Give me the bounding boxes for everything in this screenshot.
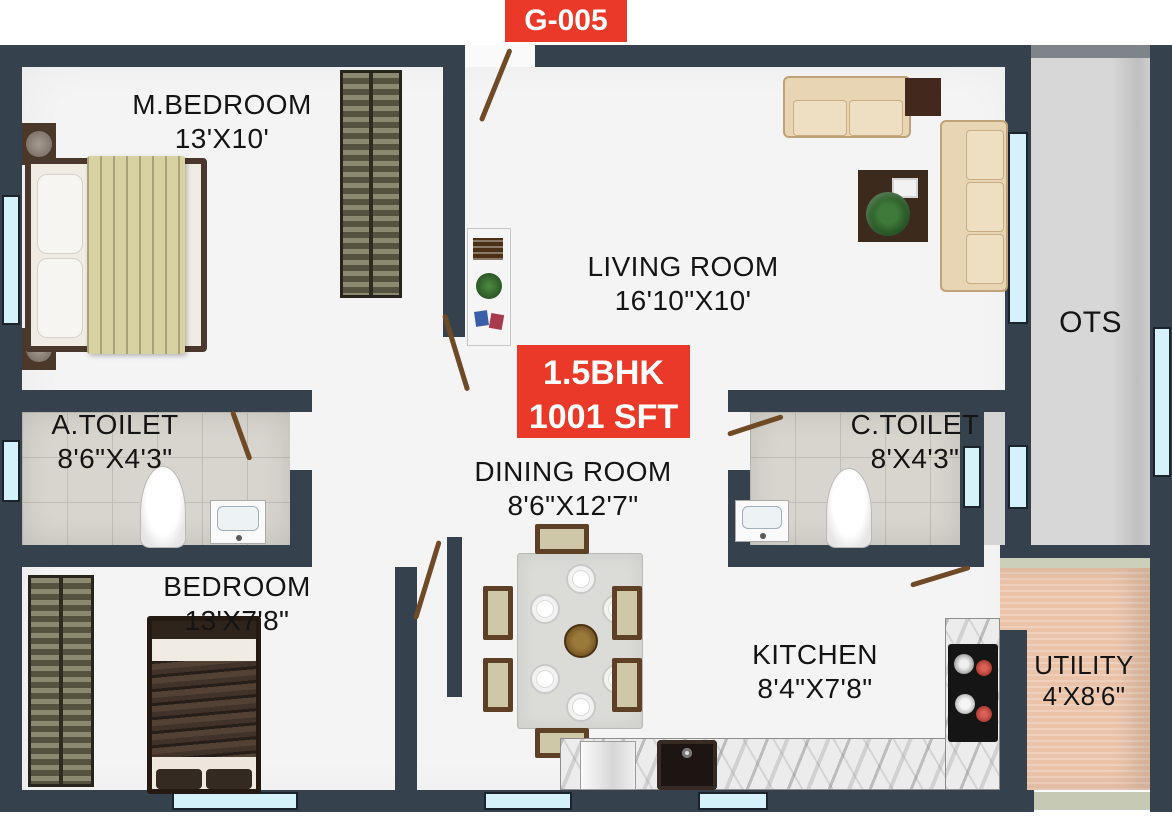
window-dining-bottom <box>484 792 572 810</box>
wall-utility-top <box>1000 545 1172 558</box>
room-dims: 8'4"X7'8" <box>710 672 920 706</box>
basin-tap <box>236 535 242 541</box>
bed-pillow <box>37 258 83 338</box>
room-dims: 13'X7'8" <box>117 604 357 638</box>
room-name: LIVING ROOM <box>553 250 813 284</box>
room-label-kitchen: KITCHEN 8'4"X7'8" <box>710 638 920 705</box>
dinner-plate <box>530 594 560 624</box>
photo-frame <box>489 313 504 330</box>
bedroom-wardrobe <box>28 575 94 787</box>
utility-threshold-top <box>1000 558 1150 568</box>
photo-frame <box>474 310 489 327</box>
room-label-c-toilet: C.TOILET 8'X4'3" <box>820 408 1010 475</box>
bed-pillow <box>206 769 252 789</box>
bed-blanket <box>87 156 185 354</box>
unit-number: G-005 <box>524 4 607 37</box>
wall-bedroom-right <box>395 567 417 812</box>
window-kitchen-bottom <box>698 792 768 810</box>
wall-left <box>0 45 22 812</box>
dinner-plate <box>566 692 596 722</box>
dining-chair <box>612 658 642 712</box>
sofa-cushion <box>849 100 903 136</box>
wardrobe-rail <box>59 578 63 784</box>
room-dims: 13'X10' <box>92 122 352 156</box>
wall-mbedroom-right <box>443 67 465 337</box>
stove-burner <box>976 706 992 722</box>
tv-console <box>467 228 511 346</box>
sink-tap <box>682 748 692 758</box>
bed-sheet <box>154 639 254 661</box>
room-label-dining: DINING ROOM 8'6"X12'7" <box>453 455 693 522</box>
window-living-right <box>1008 132 1028 324</box>
room-name: BEDROOM <box>117 570 357 604</box>
room-name: A.TOILET <box>25 408 205 442</box>
room-dims: 16'10"X10' <box>553 284 813 318</box>
sofa-two-seater <box>783 76 911 138</box>
room-label-mbedroom: M.BEDROOM 13'X10' <box>92 88 352 155</box>
book-stack <box>473 238 503 260</box>
stove-burner <box>976 660 992 676</box>
window-ots-right <box>1153 327 1171 477</box>
window-a-toilet-left <box>2 440 20 502</box>
sofa-three-seater <box>940 120 1008 292</box>
dining-chair <box>483 658 513 712</box>
bed-sheet <box>154 757 254 769</box>
dining-chair <box>535 524 589 554</box>
bed-pillow <box>156 769 202 789</box>
dinner-plate <box>566 564 596 594</box>
basin-tap <box>760 533 766 539</box>
kitchen-sink <box>657 740 717 790</box>
wall-dining-stub <box>447 537 462 697</box>
bedroom-bed <box>147 616 261 794</box>
room-name: M.BEDROOM <box>92 88 352 122</box>
window-bedroom-bottom <box>172 792 298 810</box>
room-dims: 8'6"X12'7" <box>453 489 693 523</box>
mbedroom-double-bed <box>25 158 207 352</box>
sofa-cushion <box>793 100 847 136</box>
room-label-a-toilet: A.TOILET 8'6"X4'3" <box>25 408 205 475</box>
room-name: KITCHEN <box>710 638 920 672</box>
wall-a-toilet-bottom <box>0 545 312 567</box>
utility-threshold-bottom <box>1034 792 1150 810</box>
window-mbedroom-left <box>2 195 20 325</box>
stove-cooktop <box>948 644 998 742</box>
potted-plant <box>476 273 502 299</box>
room-label-bedroom: BEDROOM 13'X7'8" <box>117 570 357 637</box>
coffee-table <box>858 170 928 242</box>
basin-bowl <box>742 506 782 529</box>
room-name: DINING ROOM <box>453 455 693 489</box>
center-bowl <box>564 624 598 658</box>
room-label-living: LIVING ROOM 16'10"X10' <box>553 250 813 317</box>
side-table <box>905 78 941 116</box>
stove-burner <box>954 654 974 674</box>
entrance-opening <box>465 45 535 67</box>
bed-blanket <box>152 661 256 757</box>
wardrobe-rail <box>369 73 373 295</box>
sofa-cushion <box>966 130 1004 180</box>
unit-number-badge: G-005 <box>505 0 627 42</box>
unit-summary-box: 1.5BHK 1001 SFT <box>517 345 690 438</box>
table-lamp <box>26 131 52 157</box>
unit-type: 1.5BHK <box>517 351 690 395</box>
room-label-ots: OTS <box>1031 305 1150 341</box>
window-c-toilet-right2 <box>1008 445 1028 509</box>
wash-basin <box>735 500 789 542</box>
potted-plant <box>866 192 910 236</box>
bed-pillow <box>37 174 83 254</box>
wash-basin <box>210 500 266 544</box>
dining-chair <box>483 586 513 640</box>
basin-bowl <box>217 506 259 531</box>
room-name: OTS <box>1031 305 1150 341</box>
unit-area: 1001 SFT <box>517 395 690 439</box>
stove-burner <box>955 694 975 714</box>
dinner-plate <box>530 664 560 694</box>
room-dims: 8'X4'3" <box>820 442 1010 476</box>
room-label-utility: UTILITY 4'X8'6" <box>1014 650 1154 712</box>
floor-plan: M.BEDROOM 13'X10' LIVING ROOM 16'10"X10'… <box>0 0 1172 824</box>
dining-chair <box>612 586 642 640</box>
room-dims: 4'X8'6" <box>1014 681 1154 712</box>
ots-railing <box>1031 45 1150 58</box>
room-name: UTILITY <box>1014 650 1154 681</box>
kitchen-appliance <box>580 741 636 790</box>
sofa-cushion <box>966 234 1004 284</box>
room-dims: 8'6"X4'3" <box>25 442 205 476</box>
wall-c-toilet-bottom <box>728 545 984 567</box>
sofa-cushion <box>966 182 1004 232</box>
room-name: C.TOILET <box>820 408 1010 442</box>
